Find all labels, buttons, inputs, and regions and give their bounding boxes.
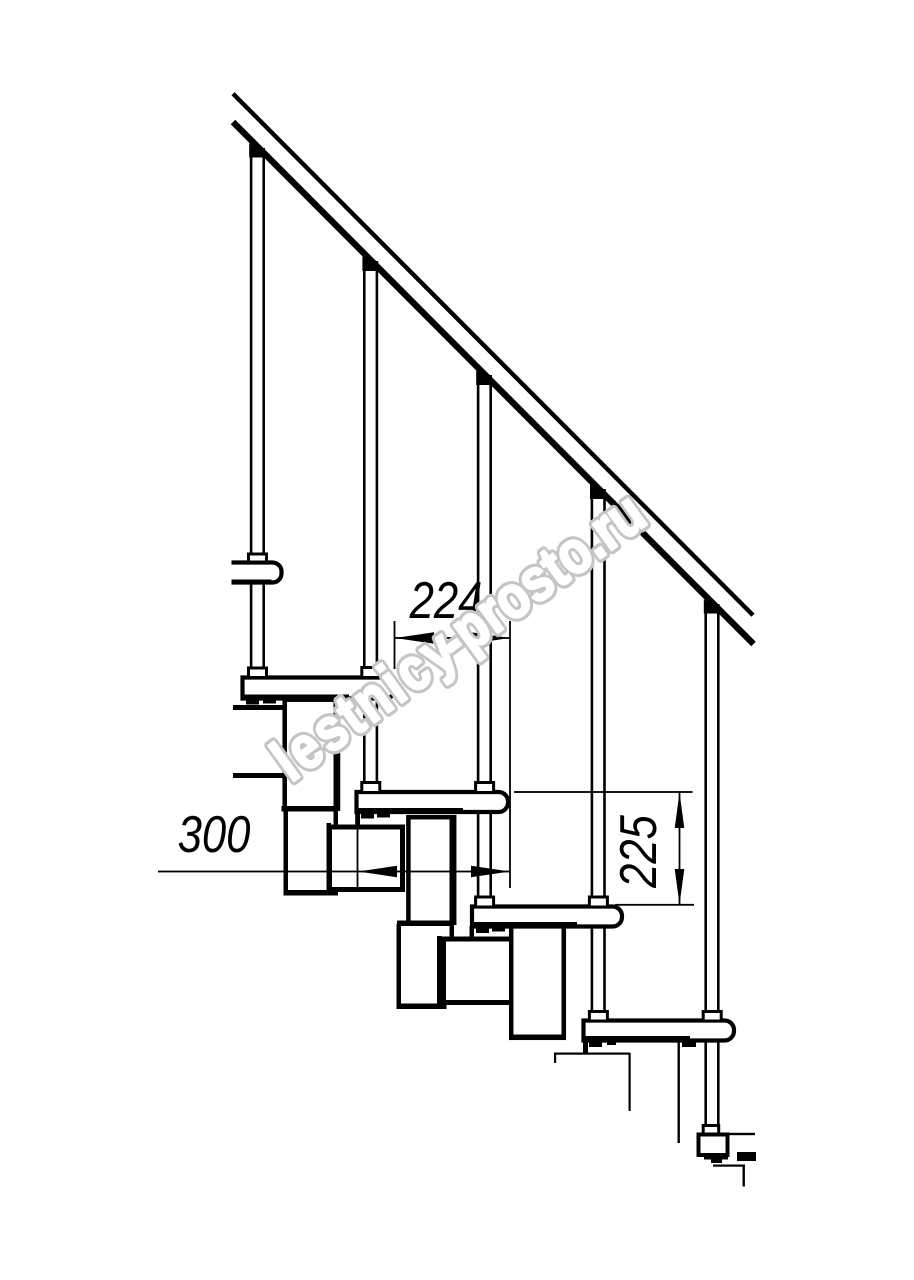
svg-text:300: 300 (178, 806, 251, 864)
svg-text:225: 225 (610, 814, 668, 889)
